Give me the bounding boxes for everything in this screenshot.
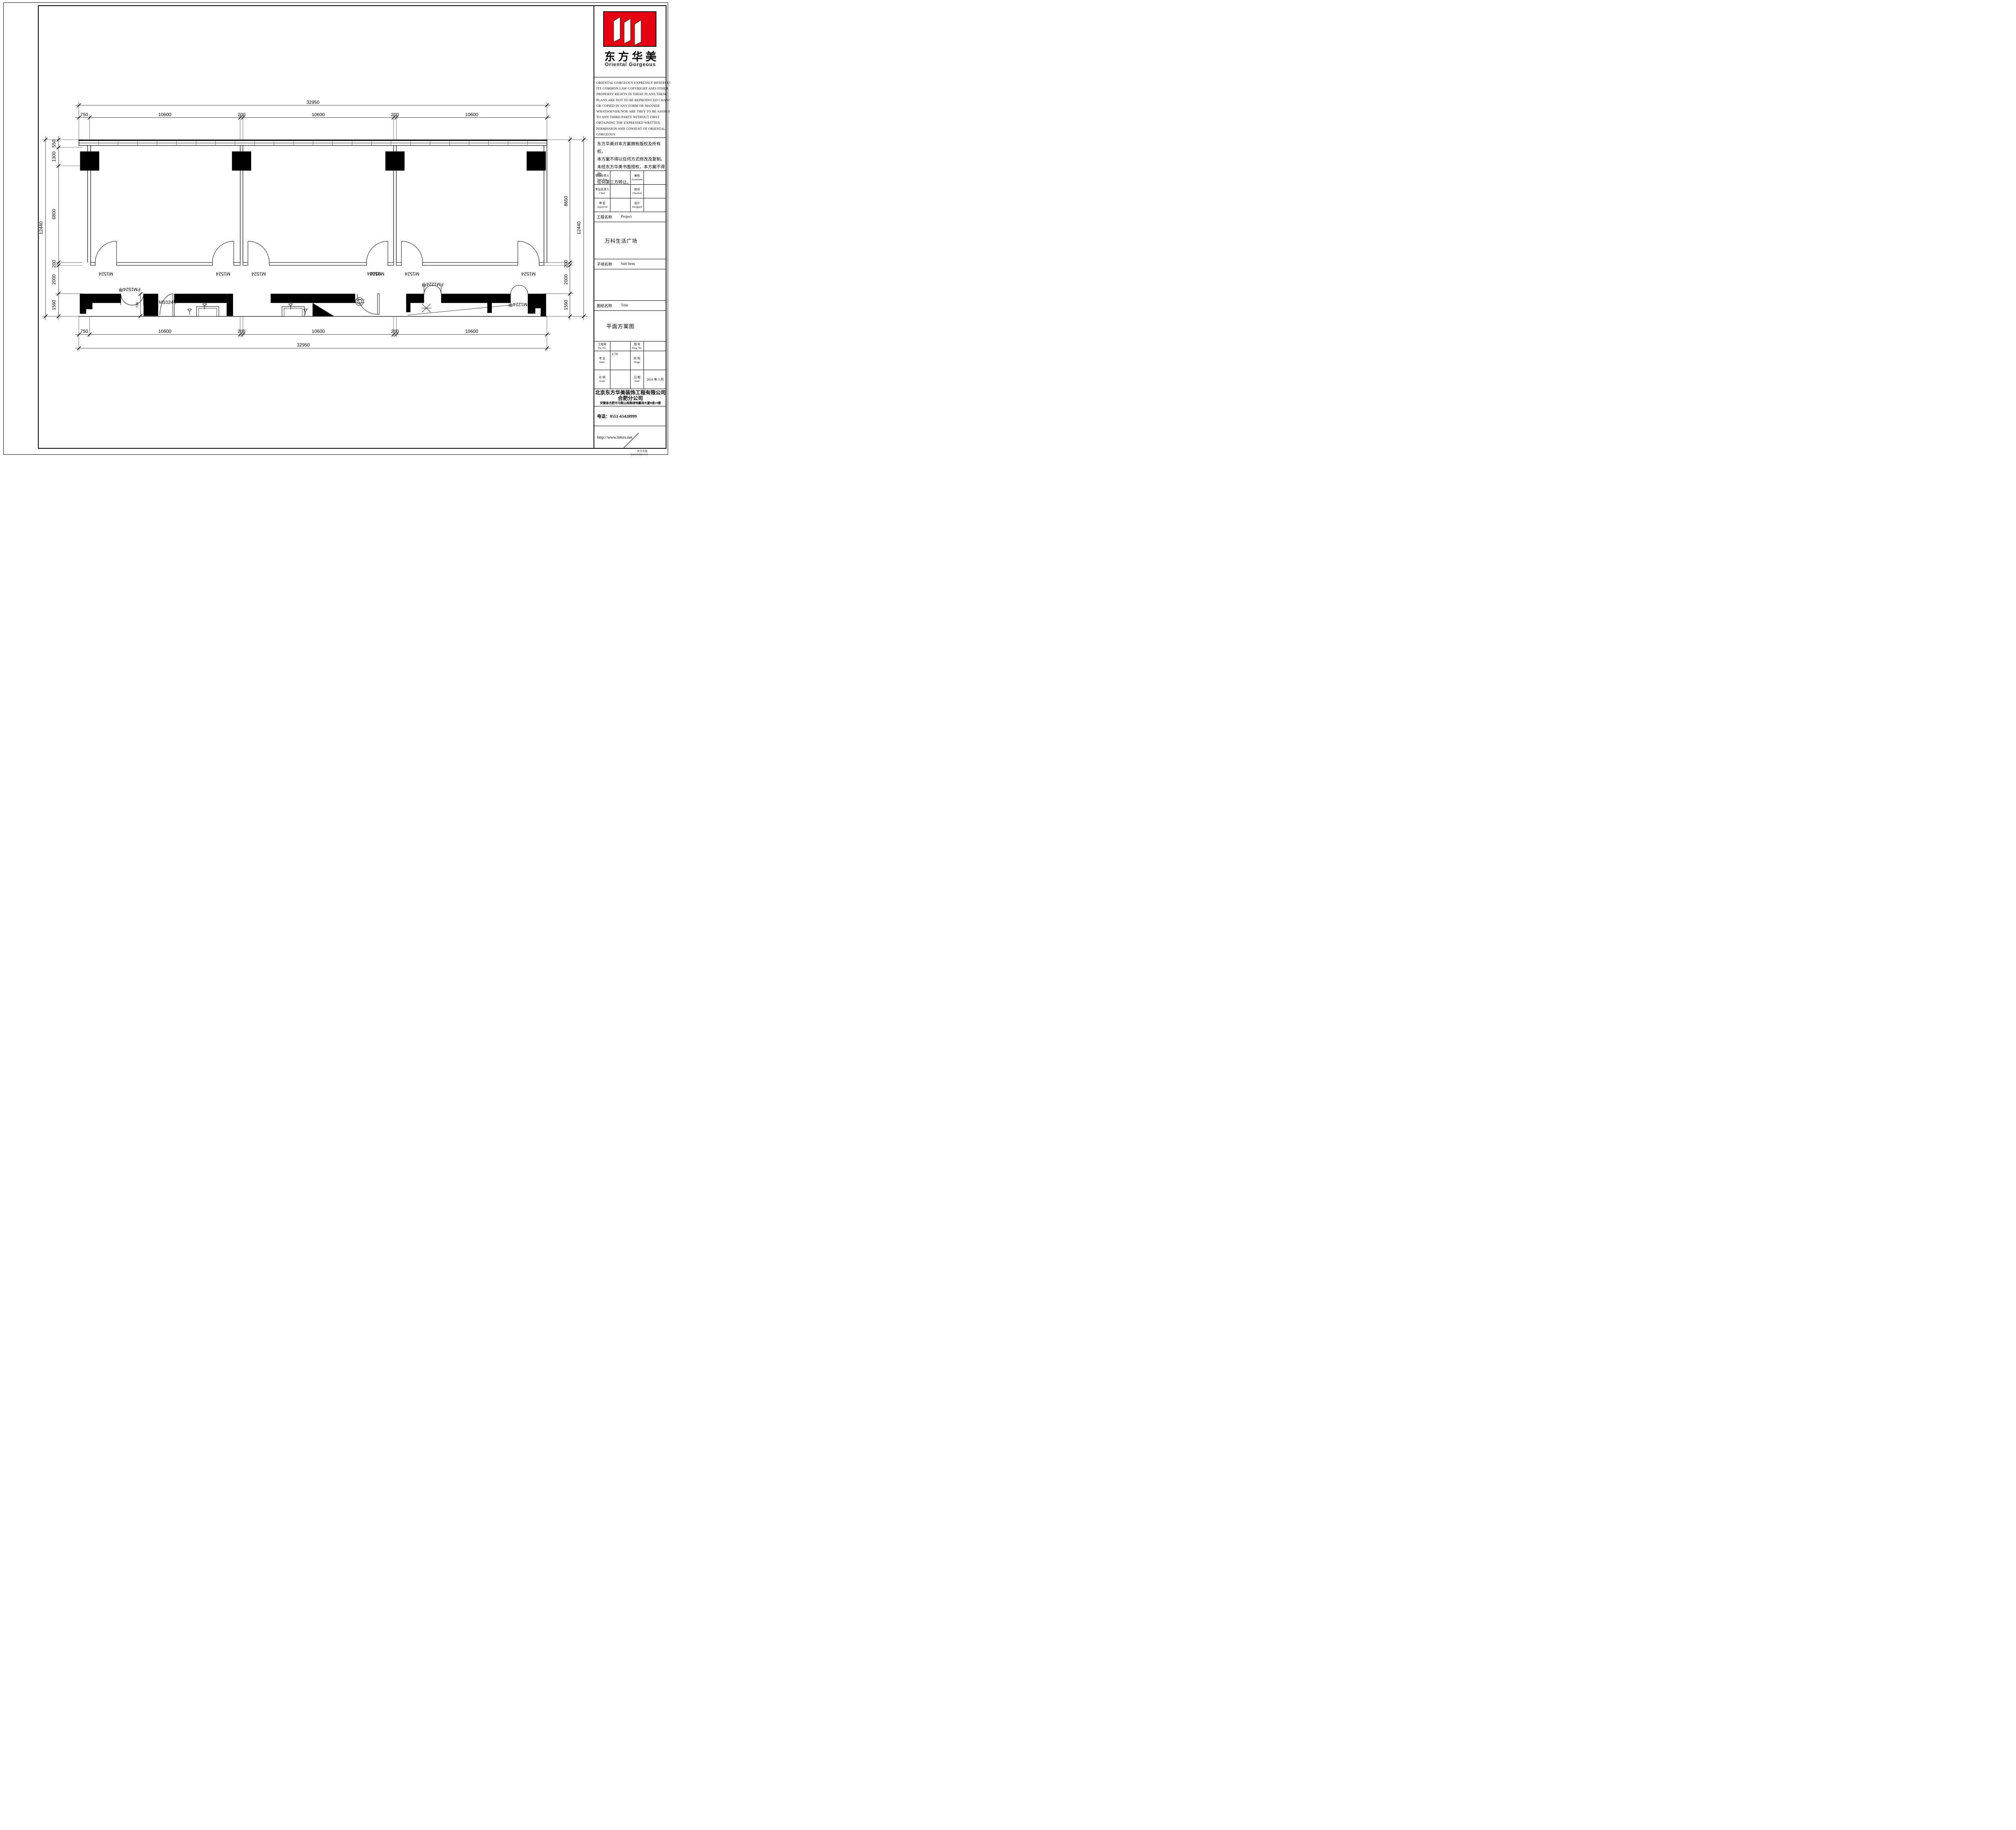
door-frame — [284, 308, 302, 316]
door-tag-m1024: M1024 — [367, 271, 382, 277]
personnel-value[interactable] — [610, 171, 631, 184]
walls — [87, 140, 547, 262]
column — [527, 152, 546, 171]
dim-label: 1590 — [563, 300, 569, 310]
dim-label: 10600 — [465, 329, 478, 334]
dim-label: 12440 — [38, 221, 44, 234]
project-label-row: 工程名称 Project — [594, 212, 666, 222]
dim-label: 10600 — [158, 112, 171, 117]
door-m1524-swings — [95, 241, 539, 262]
logo-stripe — [614, 17, 620, 42]
dim-label: 750 — [80, 112, 88, 117]
dim-label: 10600 — [312, 329, 325, 334]
logo-mark — [603, 11, 656, 47]
meta-row-2: 专 业Dept. 1:70 阶 段Stage — [594, 351, 666, 370]
dim-label: 32950 — [306, 100, 319, 105]
door-tag-m1524: M1524 — [521, 271, 536, 277]
scale-value[interactable] — [610, 370, 631, 389]
pjt-no-value[interactable] — [610, 341, 631, 351]
door-tag-fm1224: FM1224甲 — [422, 282, 444, 287]
title-block: 东方华美 Oriental Gorgeous ORIENTAL GORGEOUS… — [594, 5, 666, 449]
ramp-line — [408, 305, 510, 315]
dim-label: 200 — [237, 112, 245, 117]
dimension-texts: 32950 750 10600 200 10600 200 10600 750 … — [38, 100, 581, 348]
company-web[interactable]: http://www.hmzs.net — [594, 426, 666, 449]
copyright-cn: 东方华美对本方案拥有版权及所有权。本方案不得以任何方式修改及复制。 未经东方华美… — [594, 138, 666, 171]
project-name: 万科生活广场 — [594, 222, 666, 259]
subitem-value — [594, 269, 666, 301]
door-fm1224-swing — [519, 285, 528, 294]
logo-en-text: Oriental Gorgeous — [594, 62, 666, 67]
company-name: 北京东方华美装饰工程有限公司 — [594, 389, 666, 396]
dim-label: 10600 — [312, 112, 325, 117]
dim-label: 6800 — [51, 209, 56, 219]
column — [232, 152, 251, 171]
dim-label: 2000 — [51, 274, 56, 285]
drawing-sheet: 32950 750 10600 200 10600 200 10600 750 … — [0, 0, 670, 458]
dwg-no-value[interactable] — [644, 341, 666, 351]
personnel-grid: 项目负责人Item.Prin 审核Examined 专业负责人Chief 校对C… — [594, 171, 666, 212]
dim-label: 2000 — [563, 274, 569, 285]
floor-plan: 32950 750 10600 200 10600 200 10600 750 … — [33, 96, 593, 358]
dim-label: 738 — [135, 302, 139, 308]
personnel-value[interactable] — [644, 185, 666, 198]
logo-stripe — [624, 19, 631, 44]
company-tel: 电话：0551-65428999 — [594, 406, 666, 426]
dim-label: 200 — [563, 260, 569, 268]
stage-value[interactable] — [644, 351, 666, 370]
dim-label: 12440 — [576, 221, 581, 234]
curtain-wall — [79, 140, 548, 146]
service-rooms — [80, 294, 546, 316]
x-fixture — [421, 304, 431, 312]
company-branch: 合肥分公司 — [594, 396, 666, 401]
personnel-value[interactable] — [644, 198, 666, 212]
dim-label: 1590 — [51, 300, 56, 310]
company-address: 安徽省合肥市马鞍山南路绿地赢海大厦B座19楼 — [594, 401, 666, 405]
subitem-label-row: 子项名称 Sub Item — [594, 259, 666, 269]
company-block: 北京东方华美装饰工程有限公司 合肥分公司 安徽省合肥市马鞍山南路绿地赢海大厦B座… — [594, 389, 666, 406]
meta-row-1: 工程号Pjt .No. 图 号Dwg. No. — [594, 341, 666, 351]
door-tag-m1524: M1524 — [405, 271, 419, 277]
logo-area: 东方华美 Oriental Gorgeous — [594, 5, 666, 77]
door-tag-fm1524: FM1524甲 — [119, 287, 140, 292]
door-m1024-swing — [357, 294, 377, 314]
meta-row-3: 比 例Scale 日 期Date 2016 年 3 月 — [594, 370, 666, 389]
personnel-value[interactable] — [644, 171, 666, 184]
dim-label: 750 — [80, 329, 88, 334]
door-tag-fm1024: FM1024甲 — [156, 300, 178, 305]
door-tag-fm1224: FM1224甲 — [508, 302, 530, 307]
dim-label: 550 — [51, 139, 56, 147]
watermark: 东方华美 www.hmzs.net — [596, 450, 648, 456]
dim-label: 32950 — [297, 342, 310, 348]
logo-stripe — [635, 20, 641, 45]
door-fm1224-swing — [511, 285, 519, 294]
shopfront-wall — [91, 241, 544, 265]
personnel-value[interactable] — [610, 185, 631, 198]
drawing-title: 平面方案图 — [594, 311, 666, 341]
door-tag-m1524: M1524 — [252, 271, 266, 277]
floor-fixture — [356, 298, 364, 306]
personnel-value[interactable] — [610, 198, 631, 212]
dim-label: 200 — [237, 329, 245, 334]
door-dim-738 — [139, 292, 142, 318]
door-fm1524-swing — [121, 294, 132, 305]
wall-lamp-icon — [188, 309, 192, 315]
columns — [80, 152, 546, 171]
dim-label: 10600 — [465, 112, 478, 117]
door-m1024-leaf — [377, 294, 379, 314]
door-frame — [199, 308, 217, 316]
column — [385, 152, 405, 171]
column — [80, 152, 100, 171]
dept-value[interactable]: 1:70 — [610, 351, 631, 370]
door-tag-m1524: M1524 — [99, 271, 113, 277]
date-value: 2016 年 3 月 — [644, 370, 666, 389]
dim-label: 200 — [391, 329, 399, 334]
dim-label: 8650 — [563, 196, 569, 206]
dim-label: 1300 — [51, 152, 56, 162]
dim-label: 200 — [51, 260, 56, 268]
dim-label: 10600 — [158, 329, 171, 334]
door-tag-m1524: M1524 — [216, 271, 231, 277]
dim-label: 200 — [391, 112, 399, 117]
copyright-en: ORIENTAL GORGEOUS EXPRESSLY RESERVESITS … — [594, 77, 666, 138]
title-label-row: 图纸名称 Title — [594, 301, 666, 311]
